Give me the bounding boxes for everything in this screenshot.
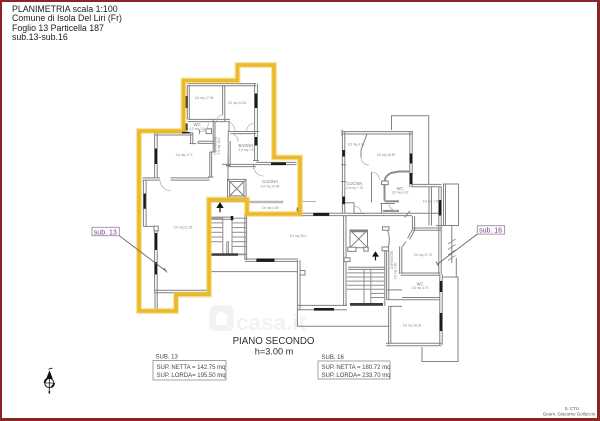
svg-text:3.6 mq 14.30: 3.6 mq 14.30 [228, 101, 247, 105]
svg-text:3.6 mq 4.05: 3.6 mq 4.05 [262, 206, 279, 210]
svg-text:PIANO SECONDO: PIANO SECONDO [233, 336, 315, 347]
svg-text:3.6 mq 4.03: 3.6 mq 4.03 [392, 191, 409, 195]
svg-text:3.6 mq 18.35: 3.6 mq 18.35 [403, 324, 422, 328]
svg-text:3.6 mq 17.05: 3.6 mq 17.05 [195, 96, 214, 100]
svg-text:4.0 mq 3.8: 4.0 mq 3.8 [189, 127, 204, 131]
svg-text:WC: WC [397, 186, 404, 191]
svg-text:h=3.00 m: h=3.00 m [255, 347, 294, 357]
svg-text:sub. 16: sub. 16 [479, 228, 502, 235]
svg-text:BAGNO: BAGNO [238, 143, 254, 148]
svg-text:SUP. LORDA= 195.50 mq: SUP. LORDA= 195.50 mq [157, 373, 226, 379]
svg-text:IL CTU: IL CTU [565, 406, 579, 411]
svg-text:3.6 mq 4.70: 3.6 mq 4.70 [412, 286, 429, 290]
svg-text:SUB. 16: SUB. 16 [322, 355, 345, 361]
svg-text:3.6 mq 31.05: 3.6 mq 31.05 [174, 226, 193, 230]
svg-text:sub. 13: sub. 13 [94, 229, 117, 236]
svg-text:3.6 mq 36.0: 3.6 mq 36.0 [290, 234, 307, 238]
svg-text:WC: WC [417, 282, 424, 287]
svg-text:3.6 mq 17.75: 3.6 mq 17.75 [414, 253, 433, 257]
svg-text:casa.it: casa.it [236, 310, 307, 335]
svg-text:4.6 mq 14.95: 4.6 mq 14.95 [261, 185, 280, 189]
svg-text:3.6 mq 18.50: 3.6 mq 18.50 [377, 153, 396, 157]
svg-text:SUP. NETTA = 142.75 mq: SUP. NETTA = 142.75 mq [157, 365, 226, 371]
svg-text:SUB. 13: SUB. 13 [156, 355, 179, 361]
svg-text:WC: WC [194, 122, 201, 127]
svg-text:3.6 mq 4.05: 3.6 mq 4.05 [348, 143, 365, 147]
svg-text:4.6 mq 7.8: 4.6 mq 7.8 [238, 148, 253, 152]
svg-text:SUP. NETTA = 180.72 mq: SUP. NETTA = 180.72 mq [322, 365, 391, 371]
svg-text:CUCINA: CUCINA [346, 181, 362, 186]
svg-text:3.6 mq 2.60: 3.6 mq 2.60 [394, 262, 398, 279]
svg-text:CUCINA: CUCINA [262, 179, 278, 184]
svg-text:Geom. Giacomo Golluccio: Geom. Giacomo Golluccio [543, 411, 596, 416]
svg-text:4.0 mq 10.0: 4.0 mq 10.0 [217, 137, 221, 154]
svg-text:SUP. LORDA= 233.70 mq: SUP. LORDA= 233.70 mq [322, 373, 391, 379]
svg-text:3.6 mq 1.50: 3.6 mq 1.50 [423, 200, 440, 204]
svg-text:4.6 mq 7.75: 4.6 mq 7.75 [346, 186, 363, 190]
svg-text:3.6 mq 17.9: 3.6 mq 17.9 [176, 153, 193, 157]
